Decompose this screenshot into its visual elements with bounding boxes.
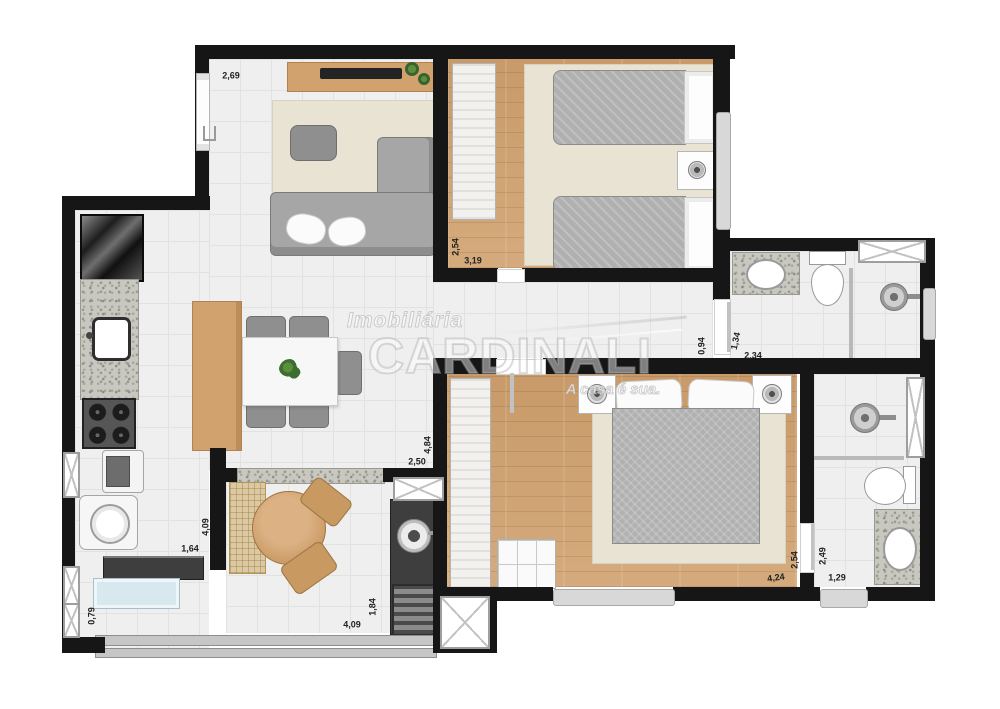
dimension-label: 1,84 [369,598,378,616]
dimension-label: 4,24 [767,572,786,583]
dimension-label: 2,34 [744,352,762,361]
dimension-label: 4,84 [424,436,433,454]
dimension-labels-layer: 2,692,543,190,941,342,344,842,504,091,64… [0,0,1000,709]
dimension-label: 3,19 [464,257,482,266]
dimension-label: 4,09 [202,518,211,536]
dimension-label: 0,79 [88,607,97,625]
dimension-label: 2,69 [222,72,240,81]
dimension-label: 2,50 [408,458,426,467]
dimension-label: 2,54 [452,238,461,256]
floor-plan-image: 2,692,543,190,941,342,344,842,504,091,64… [0,0,1000,709]
dimension-label: 1,64 [181,545,199,554]
dimension-label: 1,34 [730,331,742,350]
dimension-label: 0,94 [698,337,707,355]
dimension-label: 2,54 [791,551,800,569]
dimension-label: 2,49 [819,547,828,565]
dimension-label: 1,29 [828,574,846,583]
dimension-label: 4,09 [343,621,361,630]
